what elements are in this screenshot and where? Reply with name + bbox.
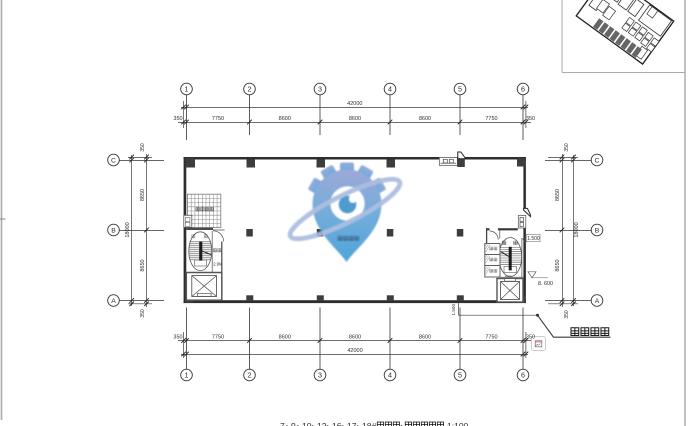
svg-text:B: B [595, 228, 600, 235]
svg-text:8600: 8600 [279, 334, 291, 340]
svg-text:10: 10 [302, 421, 312, 426]
svg-text:8600: 8600 [279, 116, 291, 122]
svg-text:7750: 7750 [485, 116, 497, 122]
svg-text:5: 5 [458, 371, 462, 380]
svg-text:350: 350 [564, 310, 570, 319]
svg-text:16: 16 [332, 421, 342, 426]
svg-text:C: C [595, 158, 600, 165]
svg-text:18000: 18000 [125, 222, 131, 237]
svg-text:8600: 8600 [349, 334, 361, 340]
svg-text:8650: 8650 [140, 259, 146, 271]
svg-text:3: 3 [318, 371, 322, 380]
svg-text:7750: 7750 [212, 116, 224, 122]
svg-text:7750: 7750 [212, 334, 224, 340]
svg-text:1.500: 1.500 [527, 236, 540, 242]
svg-text:8650: 8650 [555, 259, 561, 271]
svg-text:5: 5 [458, 85, 462, 94]
svg-text:8600: 8600 [419, 116, 431, 122]
svg-text:A: A [595, 298, 600, 305]
svg-text:350: 350 [140, 143, 146, 152]
svg-text:7: 7 [280, 421, 285, 426]
svg-text:1: 1 [185, 85, 189, 94]
svg-text:8650: 8650 [555, 189, 561, 201]
svg-text:8600: 8600 [419, 334, 431, 340]
svg-text:4: 4 [388, 371, 392, 380]
svg-text:7750: 7750 [485, 334, 497, 340]
svg-text:2.9M: 2.9M [213, 261, 223, 266]
svg-text:350: 350 [173, 334, 182, 340]
svg-text:350: 350 [526, 116, 535, 122]
svg-text:8650: 8650 [140, 189, 146, 201]
svg-text:3: 3 [318, 85, 322, 94]
svg-text:1:100: 1:100 [447, 421, 469, 426]
svg-text:12: 12 [317, 421, 327, 426]
svg-text:8888: 8888 [505, 275, 512, 279]
svg-text:6: 6 [521, 85, 525, 94]
svg-text:8. 600: 8. 600 [538, 281, 553, 287]
svg-text:18#: 18# [362, 421, 376, 426]
svg-text:6: 6 [521, 371, 525, 380]
svg-text:42000: 42000 [347, 101, 362, 107]
svg-text:17: 17 [347, 421, 357, 426]
svg-text:8600: 8600 [349, 116, 361, 122]
svg-text:1.500: 1.500 [451, 304, 456, 316]
svg-text:4: 4 [388, 85, 392, 94]
svg-text:350: 350 [173, 116, 182, 122]
svg-text:9: 9 [291, 421, 296, 426]
svg-text:A: A [111, 298, 116, 305]
svg-text:B: B [111, 228, 116, 235]
svg-text:350: 350 [140, 309, 146, 318]
svg-text:350: 350 [564, 143, 570, 152]
svg-text:2: 2 [248, 85, 252, 94]
svg-text:350: 350 [526, 334, 535, 340]
svg-text:42000: 42000 [347, 348, 362, 354]
svg-text:C: C [111, 158, 116, 165]
svg-text:1: 1 [185, 371, 189, 380]
svg-text:2: 2 [248, 371, 252, 380]
svg-text:18000: 18000 [574, 222, 580, 237]
